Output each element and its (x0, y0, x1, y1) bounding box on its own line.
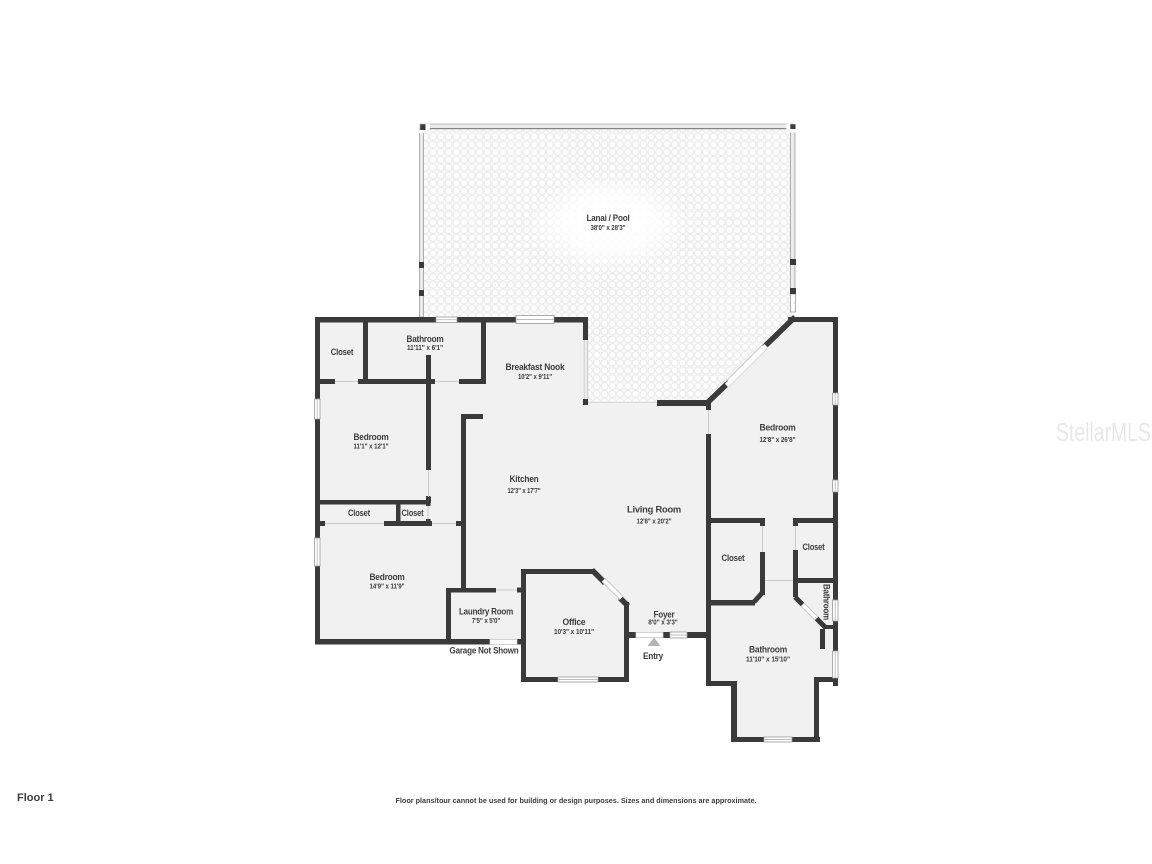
svg-text:Bedroom: Bedroom (760, 423, 796, 434)
svg-text:12'8" x 26'8": 12'8" x 26'8" (760, 437, 796, 444)
svg-text:StellarMLS: StellarMLS (1056, 419, 1151, 447)
svg-text:10'3" x 10'11": 10'3" x 10'11" (554, 629, 594, 636)
svg-text:Bedroom: Bedroom (354, 432, 389, 443)
svg-text:7'5" x 5'0": 7'5" x 5'0" (472, 618, 501, 625)
svg-text:Entry: Entry (643, 651, 664, 662)
svg-text:Breakfast Nook: Breakfast Nook (506, 362, 566, 373)
svg-text:Closet: Closet (402, 508, 424, 518)
svg-text:Floor 1: Floor 1 (17, 792, 54, 804)
svg-text:11'11" x 6'1": 11'11" x 6'1" (407, 345, 443, 352)
svg-text:Laundry Room: Laundry Room (459, 607, 513, 618)
svg-text:Closet: Closet (803, 542, 825, 552)
svg-text:Lanai / Pool: Lanai / Pool (587, 213, 630, 224)
svg-text:10'2" x 9'11": 10'2" x 9'11" (518, 374, 552, 381)
svg-text:Bathroom: Bathroom (407, 334, 444, 345)
svg-text:Living Room: Living Room (627, 505, 681, 516)
svg-text:14'9" x 11'9": 14'9" x 11'9" (370, 584, 405, 591)
svg-text:Closet: Closet (348, 508, 370, 518)
svg-text:Office: Office (563, 617, 586, 628)
svg-text:Bathroom: Bathroom (749, 645, 787, 656)
svg-text:12'3" x 17'7": 12'3" x 17'7" (508, 488, 541, 495)
svg-text:Bathroom: Bathroom (822, 584, 832, 620)
svg-text:Closet: Closet (331, 347, 354, 357)
svg-text:38'0" x 28'3": 38'0" x 28'3" (591, 225, 626, 232)
svg-text:Kitchen: Kitchen (510, 474, 539, 485)
svg-text:12'8" x 20'2": 12'8" x 20'2" (637, 519, 672, 526)
svg-text:Floor plans/tour cannot be use: Floor plans/tour cannot be used for buil… (396, 798, 757, 805)
svg-text:11'1" x 12'1": 11'1" x 12'1" (354, 444, 389, 451)
svg-text:Bedroom: Bedroom (370, 572, 405, 583)
svg-text:Garage Not Shown: Garage Not Shown (450, 646, 519, 656)
svg-text:Closet: Closet (722, 553, 745, 563)
svg-text:11'10" x 15'10": 11'10" x 15'10" (746, 657, 790, 664)
svg-text:8'0" x 3'3": 8'0" x 3'3" (648, 620, 678, 627)
